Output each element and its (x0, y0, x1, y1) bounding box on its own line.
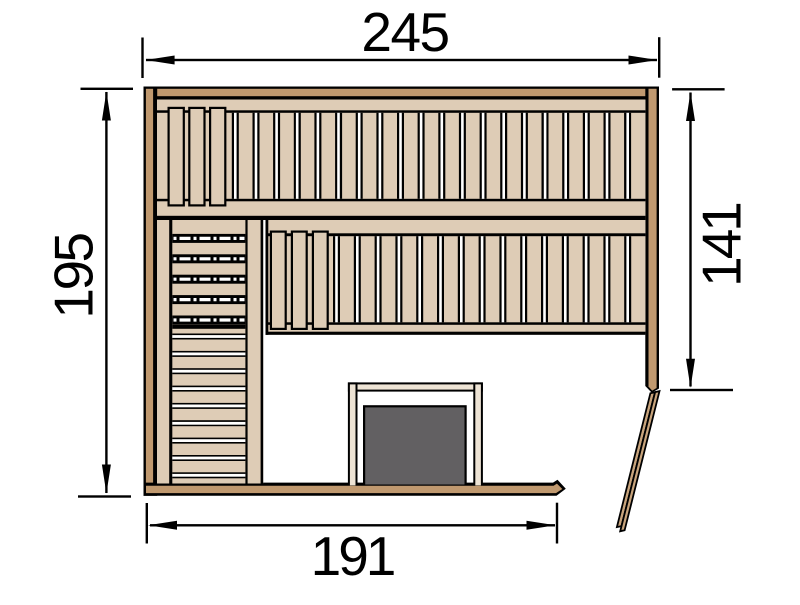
svg-text:191: 191 (311, 525, 394, 587)
svg-text:195: 195 (43, 233, 105, 318)
svg-text:141: 141 (691, 204, 753, 287)
svg-text:245: 245 (361, 1, 448, 63)
